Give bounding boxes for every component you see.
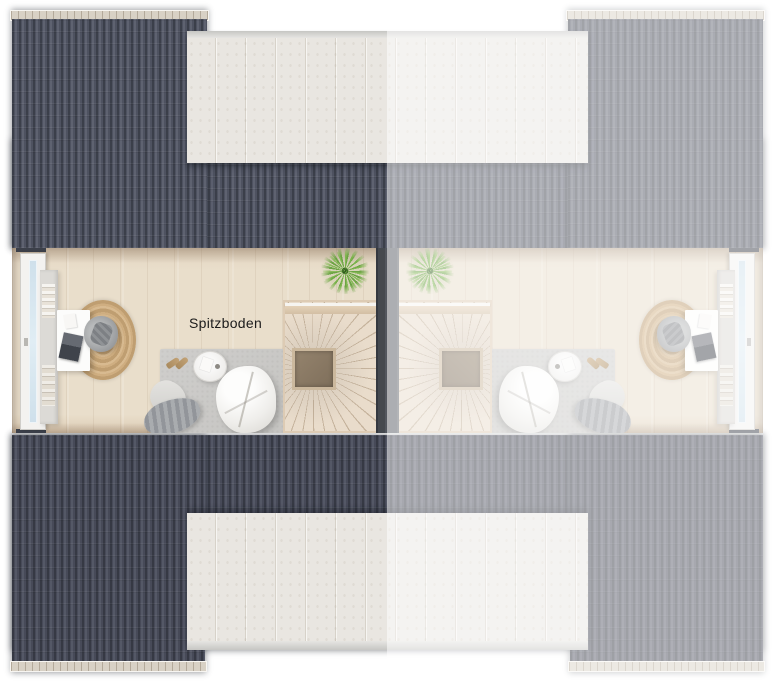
top-left-roof [12,10,207,248]
window-glass [29,260,37,423]
roof-tiles-texture [12,19,207,248]
winder-staircase [283,300,378,433]
bottom-dormer-roof [187,513,588,650]
ridge-cap [10,661,207,672]
beanbag-chair [499,366,559,433]
room-label: Spitzboden [189,315,262,331]
top-right-roof [568,10,763,248]
roof-shade [570,435,763,663]
dormer-edge [187,31,588,38]
stair-void [292,348,336,390]
window-handle [24,338,28,346]
slippers [168,356,192,371]
left-unit-room [12,248,387,433]
right-unit[interactable] [387,248,763,433]
window-handle [747,338,751,346]
paper-on-desk [698,313,712,329]
potted-plant [405,248,455,294]
left-unit[interactable] [12,248,387,433]
office-chair [84,316,118,352]
beanbag-chair [216,366,276,433]
party-wall [376,248,399,433]
side-table [548,351,582,382]
sideboard-with-books [717,270,735,424]
slippers [583,356,607,371]
paper-on-desk [63,313,77,329]
wall-stub [16,248,46,252]
ridge-cap [568,661,765,672]
stair-half-wall [399,306,490,314]
roof-tiles-texture [568,19,763,248]
roof-shade [12,435,205,663]
winder-staircase [397,300,492,433]
bottom-right-roof [570,435,763,672]
wall-stub [729,248,759,252]
potted-plant [320,248,370,294]
dormer-edge [187,641,588,650]
top-dormer-roof [187,31,588,163]
office-chair [657,316,691,352]
window-glass [738,260,746,423]
right-unit-room [387,248,763,433]
dormer-panels [187,38,588,163]
sideboard-with-books [40,270,58,424]
stair-half-wall [285,306,376,314]
dormer-panels [187,513,588,641]
stair-void [439,348,483,390]
bottom-left-roof [12,435,205,672]
attic-floor-plan: Spitzboden [0,0,775,681]
